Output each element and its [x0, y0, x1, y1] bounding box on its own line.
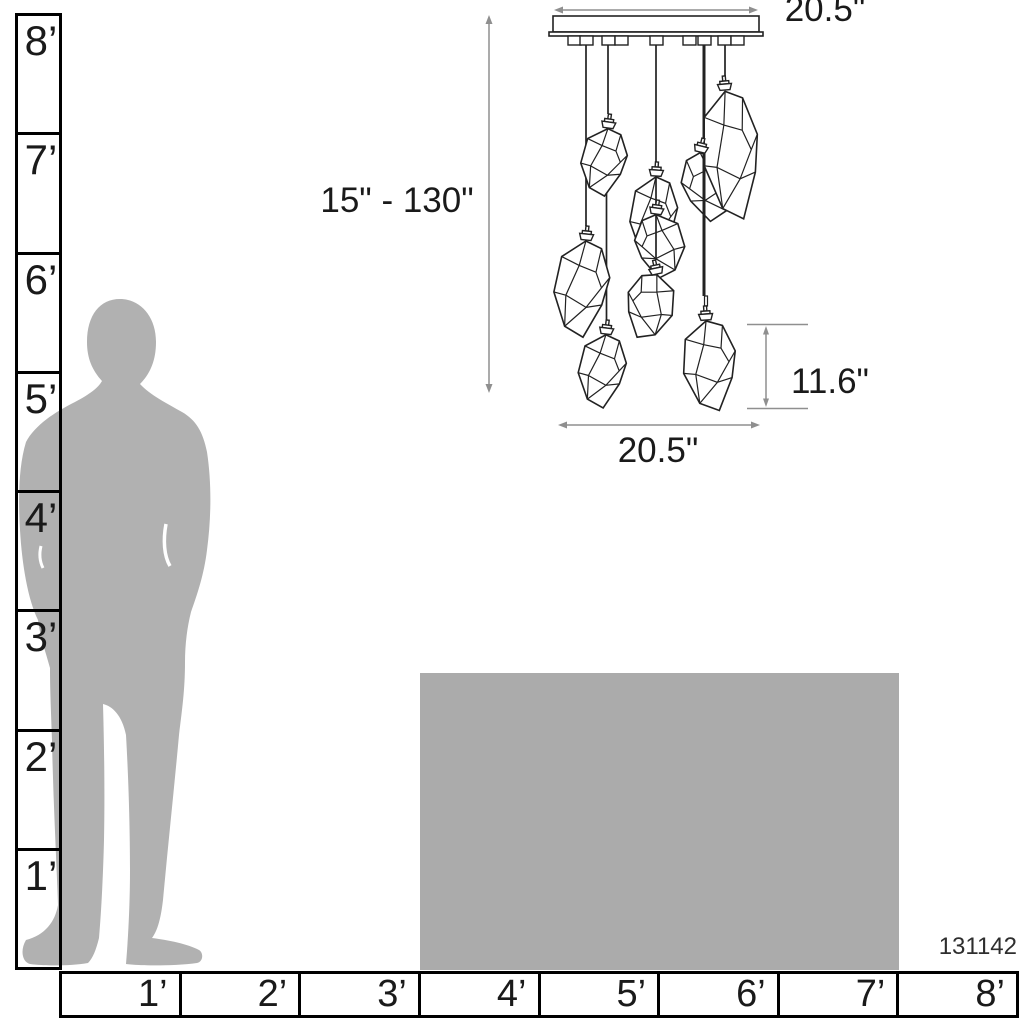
canopy: [553, 16, 759, 32]
width-ruler-cell: 8’: [896, 974, 1016, 1015]
arrow-left-icon: [554, 7, 563, 14]
height-ruler-cell: 5’: [18, 371, 59, 490]
arrow-left-icon: [558, 422, 567, 429]
width-ruler-cell: 2’: [179, 974, 299, 1015]
shade-hanger: [649, 162, 664, 177]
canopy-connectors: [568, 36, 744, 45]
height-ruler-cell: 3’: [18, 609, 59, 728]
product-number: 131142: [939, 933, 1017, 961]
width-ruler: 1’ 2’ 3’ 4’ 5’ 6’ 7’ 8’: [59, 971, 1019, 1018]
width-ruler-cell: 3’: [298, 974, 418, 1015]
stem: [705, 296, 708, 306]
arrow-right-icon: [751, 422, 760, 429]
height-ruler-cell: 1’: [18, 848, 59, 967]
dim-height-range-label: 15" - 130": [312, 181, 482, 221]
height-ruler-label: 5’: [18, 374, 59, 421]
width-ruler-label: 6’: [736, 973, 766, 1016]
glass-shade: [577, 126, 631, 199]
height-ruler-cell: 4’: [18, 490, 59, 609]
glass-shade: [620, 270, 680, 344]
height-ruler-cell: 8’: [18, 16, 59, 132]
width-ruler-label: 3’: [377, 973, 407, 1016]
chandelier-art: [549, 16, 765, 413]
shade-hanger: [698, 306, 713, 321]
table-rect: [420, 673, 899, 970]
shade-hanger: [601, 113, 617, 129]
dim-spread-width-label: 20.5": [568, 431, 748, 471]
height-ruler-label: 7’: [18, 135, 59, 182]
width-ruler-cell: 1’: [62, 974, 179, 1015]
height-ruler-cell: 6’: [18, 252, 59, 371]
dim-canopy-width-label: 20.5": [770, 0, 880, 30]
glass-shade: [680, 319, 739, 413]
shade-hanger: [599, 319, 615, 335]
height-ruler-label: 1’: [18, 851, 59, 898]
width-ruler-label: 2’: [258, 973, 288, 1016]
height-ruler-label: 2’: [18, 732, 59, 779]
height-ruler-label: 3’: [18, 612, 59, 659]
width-ruler-cell: 6’: [657, 974, 777, 1015]
arrow-up-icon: [763, 326, 769, 335]
height-ruler-label: 4’: [18, 493, 59, 540]
height-ruler-label: 8’: [18, 16, 59, 63]
width-ruler-cell: 5’: [538, 974, 658, 1015]
width-ruler-label: 5’: [617, 973, 647, 1016]
dim-shade-height-label: 11.6": [770, 362, 890, 402]
page-root: 8’ 7’ 6’ 5’ 4’ 3’ 2’ 1’ 1’ 2’ 3’ 4’ 5’ 6…: [0, 0, 1024, 1024]
height-ruler-cell: 7’: [18, 132, 59, 251]
height-ruler-cell: 2’: [18, 729, 59, 848]
arrow-right-icon: [749, 7, 758, 14]
arrow-down-icon: [486, 384, 493, 393]
width-ruler-label: 1’: [138, 973, 168, 1016]
arrow-down-icon: [763, 399, 769, 408]
height-ruler-label: 6’: [18, 255, 59, 302]
width-ruler-label: 7’: [856, 973, 886, 1016]
height-ruler: 8’ 7’ 6’ 5’ 4’ 3’ 2’ 1’: [15, 13, 62, 970]
arrow-up-icon: [486, 15, 493, 24]
width-ruler-label: 4’: [497, 973, 527, 1016]
width-ruler-cell: 4’: [418, 974, 538, 1015]
width-ruler-label: 8’: [975, 973, 1005, 1016]
width-ruler-cell: 7’: [777, 974, 897, 1015]
glass-shade: [574, 332, 629, 410]
shade-hanger: [579, 225, 594, 240]
shade-hanger: [717, 75, 732, 90]
